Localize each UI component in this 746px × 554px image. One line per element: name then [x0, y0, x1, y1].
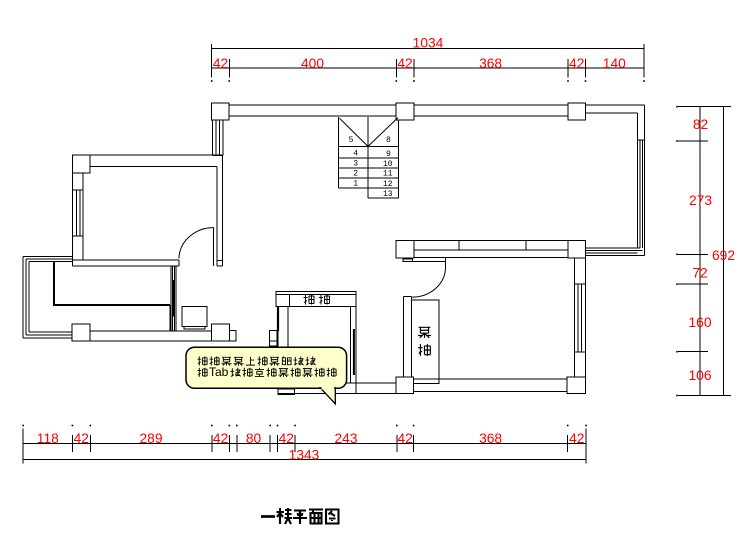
svg-text:160: 160 [688, 315, 711, 330]
svg-text:42: 42 [279, 431, 294, 446]
svg-text:13: 13 [383, 190, 393, 199]
svg-text:2: 2 [353, 169, 358, 178]
svg-text:5: 5 [349, 136, 354, 145]
svg-text:42: 42 [398, 431, 413, 446]
svg-text:1034: 1034 [413, 36, 444, 51]
svg-text:42: 42 [213, 56, 228, 71]
svg-text:692: 692 [712, 248, 735, 263]
svg-text:140: 140 [603, 56, 626, 71]
svg-text:3: 3 [353, 160, 358, 169]
svg-text:4: 4 [353, 150, 358, 159]
svg-text:368: 368 [479, 56, 502, 71]
svg-text:11: 11 [383, 170, 393, 179]
svg-text:9: 9 [386, 150, 391, 159]
svg-text:42: 42 [569, 431, 584, 446]
svg-text:1: 1 [353, 179, 358, 188]
svg-text:Tab: Tab [209, 365, 229, 379]
svg-text:82: 82 [693, 117, 708, 132]
svg-text:400: 400 [301, 56, 324, 71]
svg-text:42: 42 [74, 431, 89, 446]
svg-text:1343: 1343 [289, 447, 320, 462]
svg-text:118: 118 [37, 431, 59, 446]
svg-text:12: 12 [383, 180, 393, 189]
svg-text:10: 10 [383, 160, 393, 169]
svg-text:289: 289 [139, 431, 162, 446]
svg-text:80: 80 [246, 431, 262, 446]
svg-text:42: 42 [213, 431, 228, 446]
svg-text:72: 72 [692, 266, 707, 281]
svg-text:42: 42 [397, 56, 412, 71]
svg-text:368: 368 [479, 431, 502, 446]
svg-text:106: 106 [688, 368, 711, 383]
svg-text:8: 8 [386, 136, 391, 145]
svg-text:42: 42 [569, 56, 584, 71]
svg-text:273: 273 [689, 193, 712, 208]
svg-text:243: 243 [334, 431, 357, 446]
